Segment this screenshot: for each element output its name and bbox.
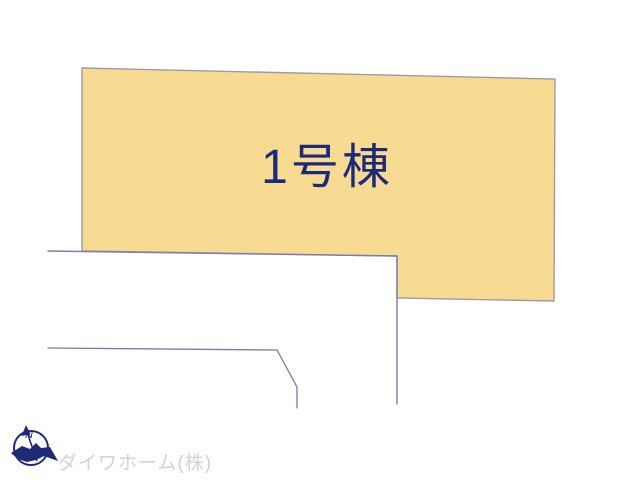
compass-north-icon: N xyxy=(11,425,58,465)
site-plan-page: 1号棟 N ダイワホーム(株) xyxy=(0,0,640,480)
upper-parcel-boundary xyxy=(48,251,397,404)
lot-1-label: 1号棟 xyxy=(261,141,393,194)
company-credit: ダイワホーム(株) xyxy=(58,452,212,474)
site-plan-diagram: 1号棟 N ダイワホーム(株) xyxy=(0,0,640,480)
compass-north-label: N xyxy=(25,429,33,441)
lower-parcel-boundary xyxy=(48,348,297,408)
